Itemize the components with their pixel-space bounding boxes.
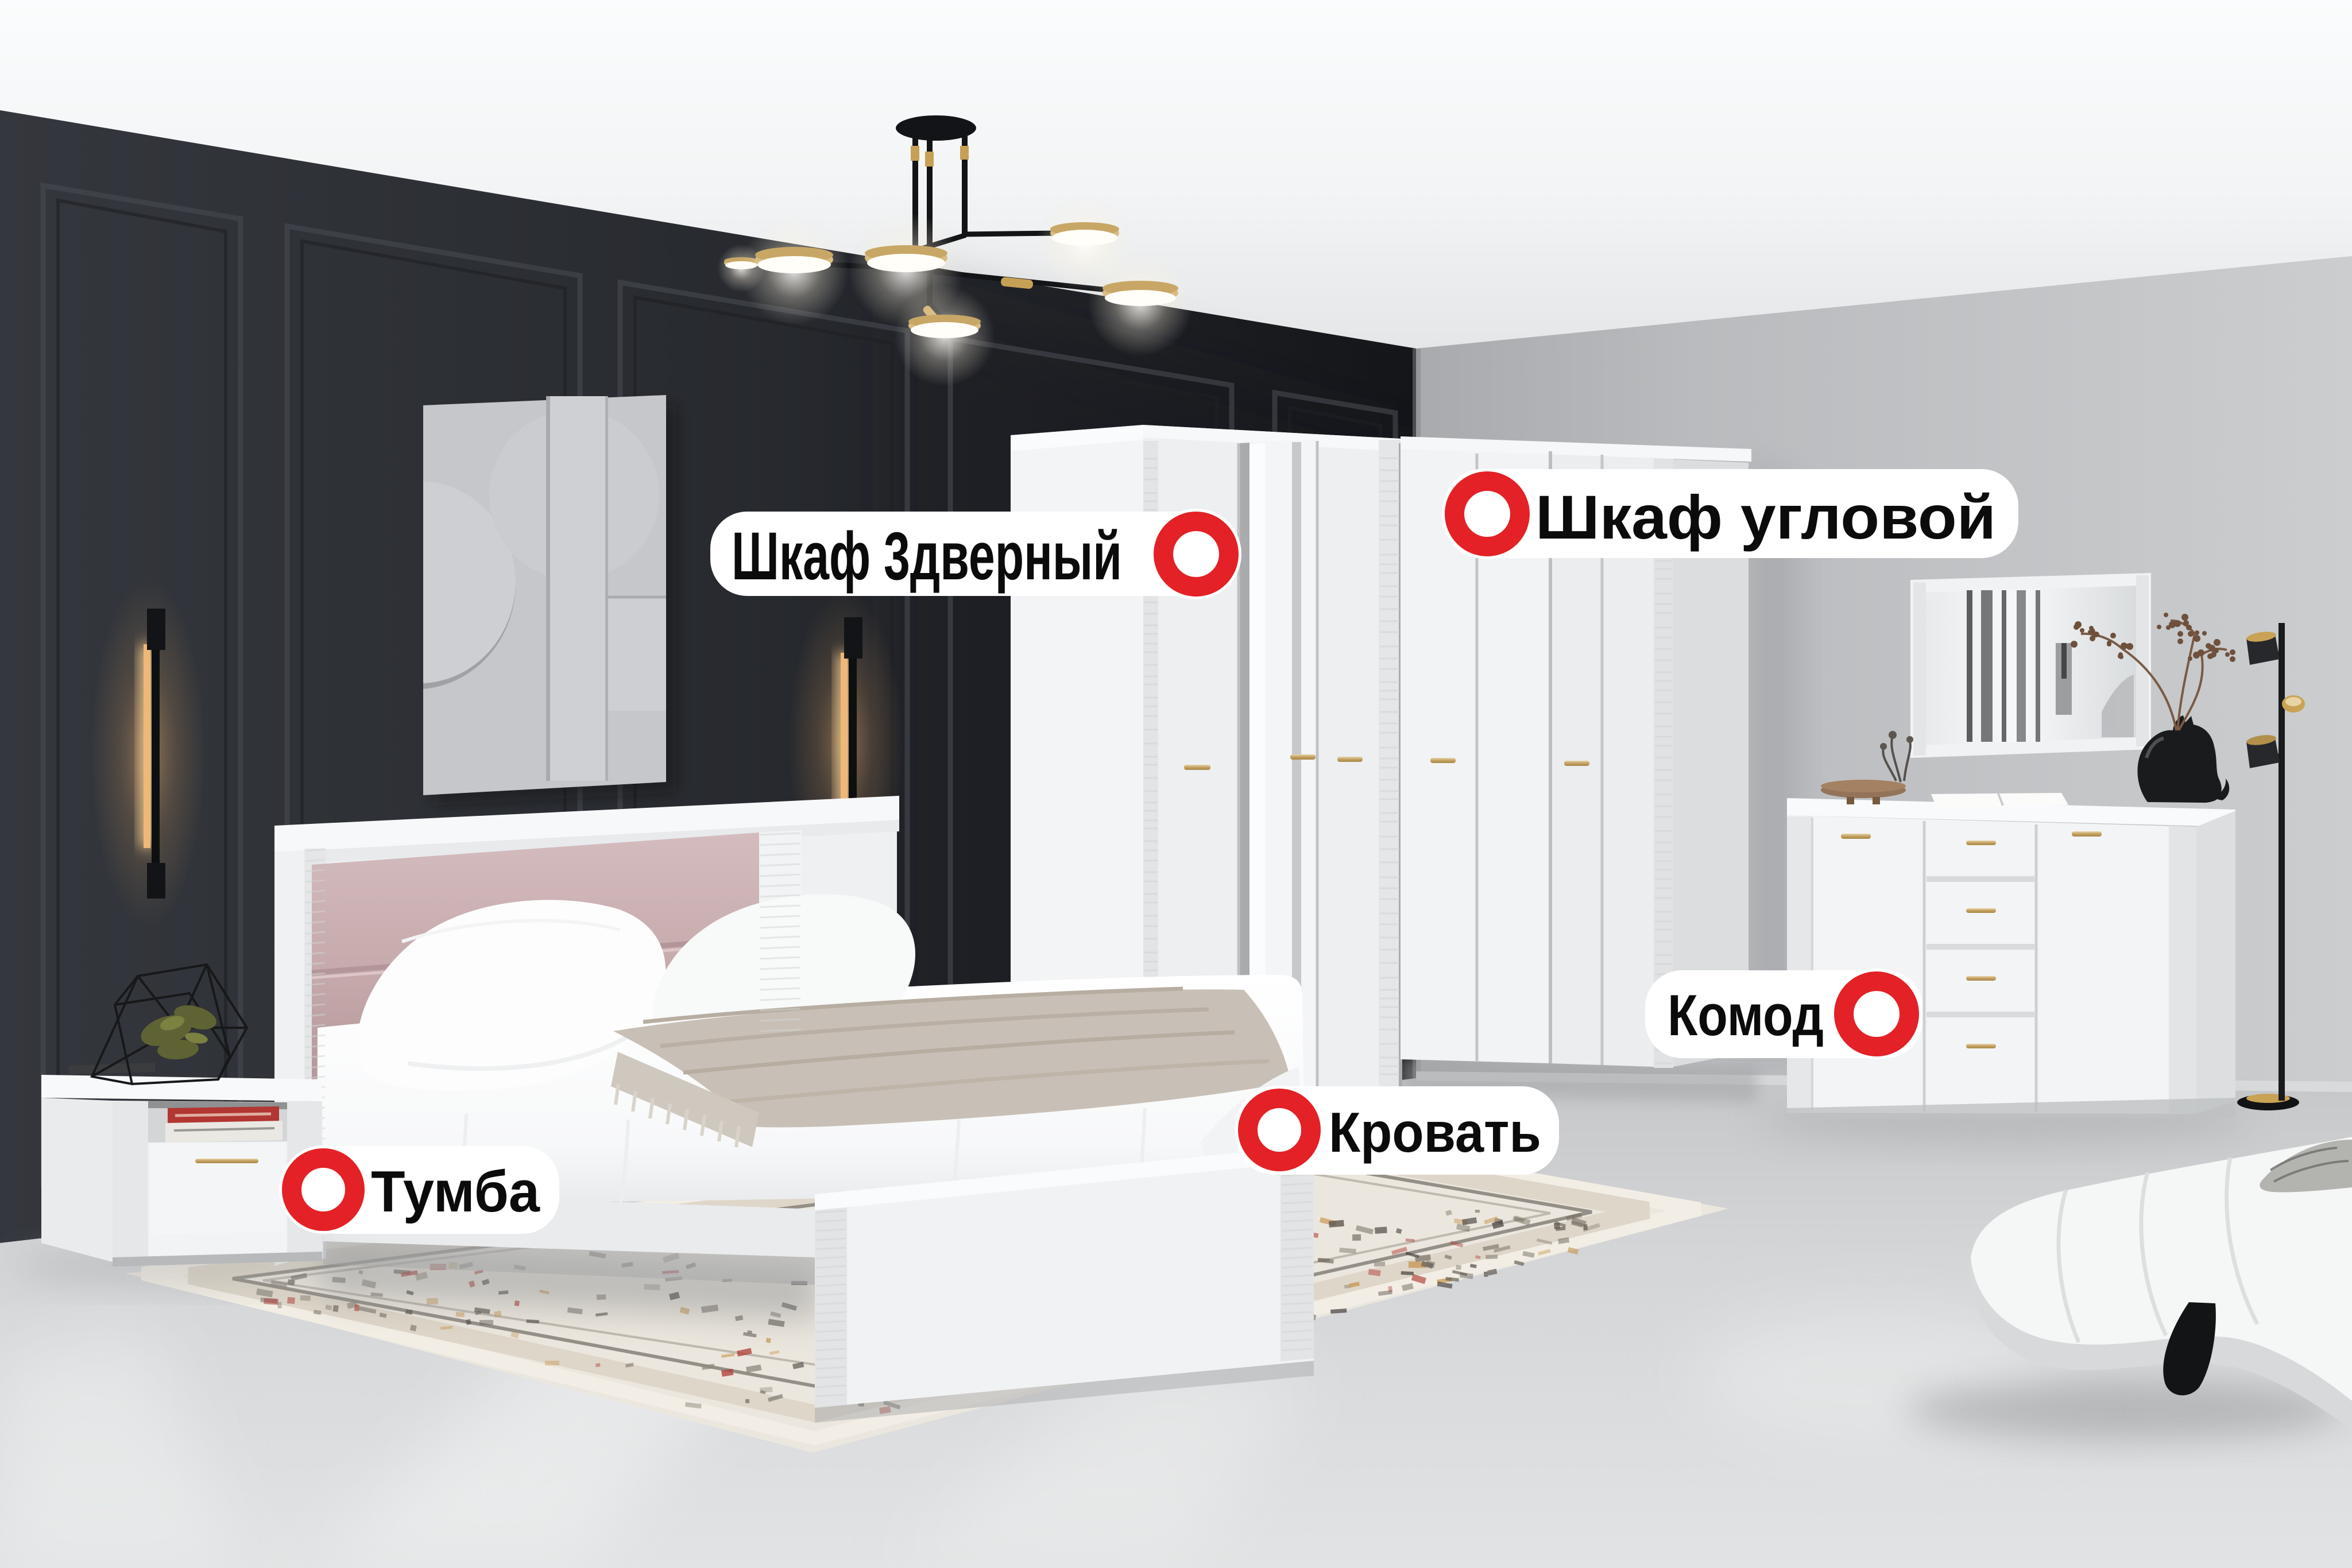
svg-text:Шкаф 3дверный: Шкаф 3дверный	[732, 518, 1122, 594]
svg-text:Шкаф угловой: Шкаф угловой	[1535, 482, 1996, 552]
svg-text:Комод: Комод	[1668, 984, 1824, 1048]
svg-text:Кровать: Кровать	[1329, 1101, 1541, 1164]
svg-text:Тумба: Тумба	[371, 1160, 540, 1224]
